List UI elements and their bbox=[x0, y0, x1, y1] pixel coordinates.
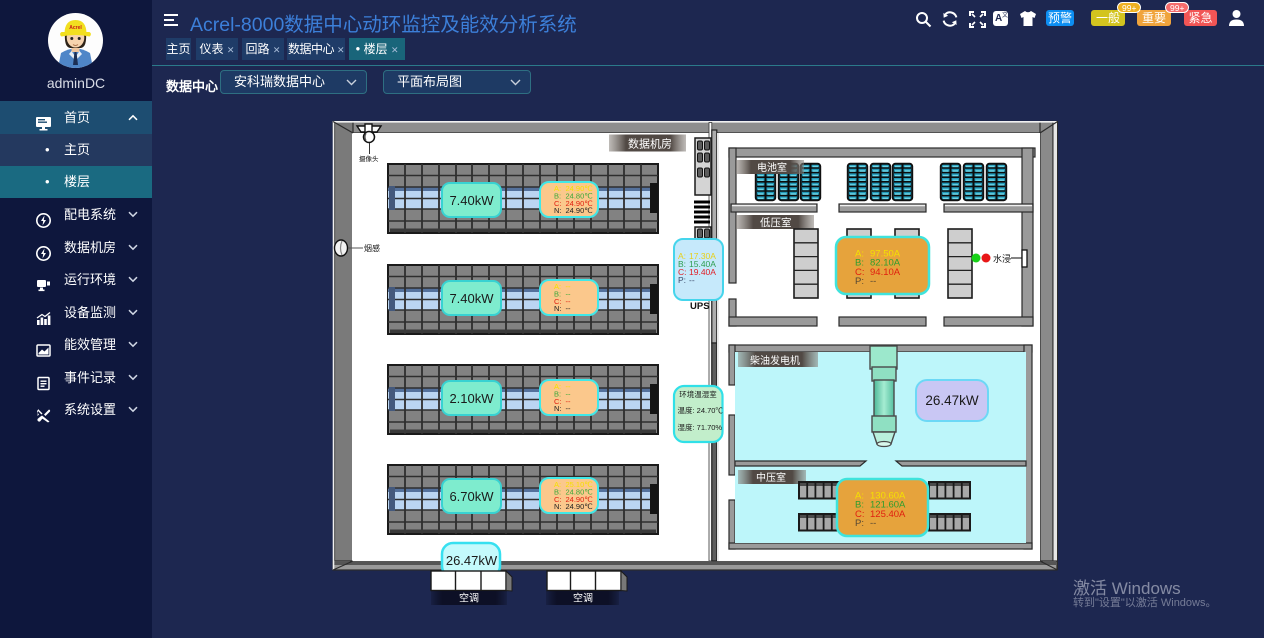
svg-text:6.70kW: 6.70kW bbox=[449, 489, 494, 504]
svg-text:低压室: 低压室 bbox=[760, 216, 792, 229]
svg-text:中压室: 中压室 bbox=[756, 471, 786, 484]
svg-text:N:: N: bbox=[554, 206, 562, 215]
svg-text:空调: 空调 bbox=[573, 592, 593, 605]
svg-text:N:: N: bbox=[554, 304, 562, 313]
svg-text:26.47kW: 26.47kW bbox=[925, 393, 979, 408]
svg-text:烟感: 烟感 bbox=[364, 243, 380, 253]
svg-text:--: -- bbox=[870, 276, 876, 287]
svg-text:湿度: 71.70%: 湿度: 71.70% bbox=[678, 422, 723, 432]
svg-text:环境温湿室: 环境温湿室 bbox=[679, 389, 717, 399]
svg-text:摄像头: 摄像头 bbox=[359, 154, 379, 163]
svg-text:N:: N: bbox=[554, 502, 562, 511]
svg-text:7.40kW: 7.40kW bbox=[449, 291, 494, 306]
svg-text:2.10kW: 2.10kW bbox=[449, 391, 494, 406]
svg-text:N:: N: bbox=[554, 404, 562, 413]
svg-text:--: -- bbox=[566, 404, 571, 413]
svg-text:P:: P: bbox=[855, 518, 864, 529]
svg-text:7.40kW: 7.40kW bbox=[449, 193, 494, 208]
svg-text:UPS: UPS bbox=[690, 301, 710, 312]
svg-text:温度: 24.70℃: 温度: 24.70℃ bbox=[678, 405, 724, 415]
svg-text:--: -- bbox=[689, 275, 695, 285]
svg-text:24.90℃: 24.90℃ bbox=[566, 502, 594, 511]
svg-text:24.90℃: 24.90℃ bbox=[566, 206, 594, 215]
svg-text:水浸: 水浸 bbox=[993, 253, 1011, 264]
svg-text:--: -- bbox=[870, 518, 876, 529]
svg-text:--: -- bbox=[566, 304, 571, 313]
svg-text:数据机房: 数据机房 bbox=[628, 137, 672, 151]
svg-text:柴油发电机: 柴油发电机 bbox=[750, 354, 800, 367]
svg-text:电池室: 电池室 bbox=[757, 161, 787, 174]
svg-text:P:: P: bbox=[855, 276, 864, 287]
svg-text:空调: 空调 bbox=[459, 592, 479, 605]
svg-text:26.47kW: 26.47kW bbox=[446, 553, 498, 568]
svg-text:P:: P: bbox=[678, 275, 686, 285]
